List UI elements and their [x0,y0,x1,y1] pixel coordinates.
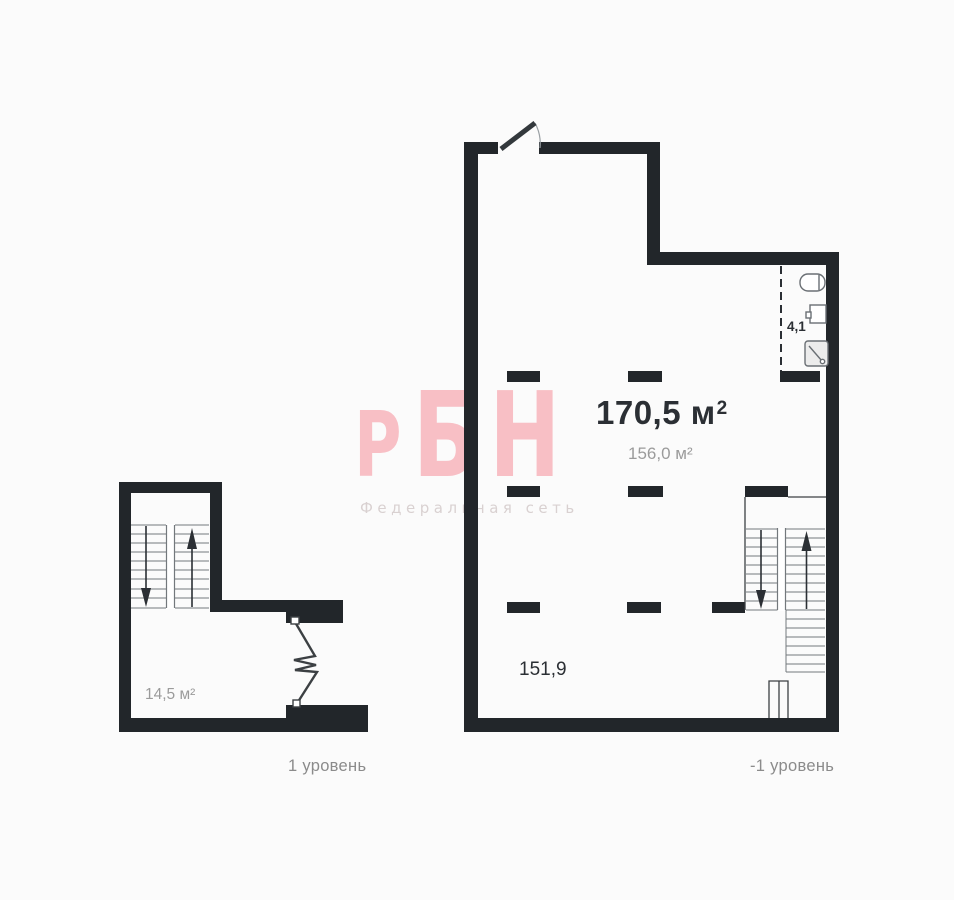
duct-shaft [769,681,788,718]
bathroom-area-label: 4,1 [787,319,806,334]
secondary-area-label: 156,0 м² [628,444,693,464]
stairs-down-arrow-icon [756,530,766,609]
level1-caption: 1 уровень [288,757,366,776]
staircase-level-minus1 [745,497,826,718]
shower-icon [805,341,828,366]
stair-break-line-icon [291,617,317,707]
walls [464,142,839,732]
floorplan-image: Р Б Н Федеральная сеть [0,0,954,900]
total-area-value: 170,5 м [596,394,716,431]
room-area-label: 151,9 [519,659,567,681]
stairs-down-arrow-icon [141,526,151,607]
total-area-label: 170,5 м2 [596,394,727,432]
level-minus1-caption: -1 уровень [750,757,834,776]
total-area-sup: 2 [717,398,728,419]
level1-area-label: 14,5 м² [145,686,195,704]
stair-treads-lower [786,610,825,672]
stairs-up-arrow-icon [187,528,197,607]
toilet-icon [800,274,825,291]
staircase-level1 [131,524,209,609]
sink-icon [806,305,826,323]
door-swing-icon [501,123,540,149]
stairs-up-arrow-icon [802,531,812,609]
